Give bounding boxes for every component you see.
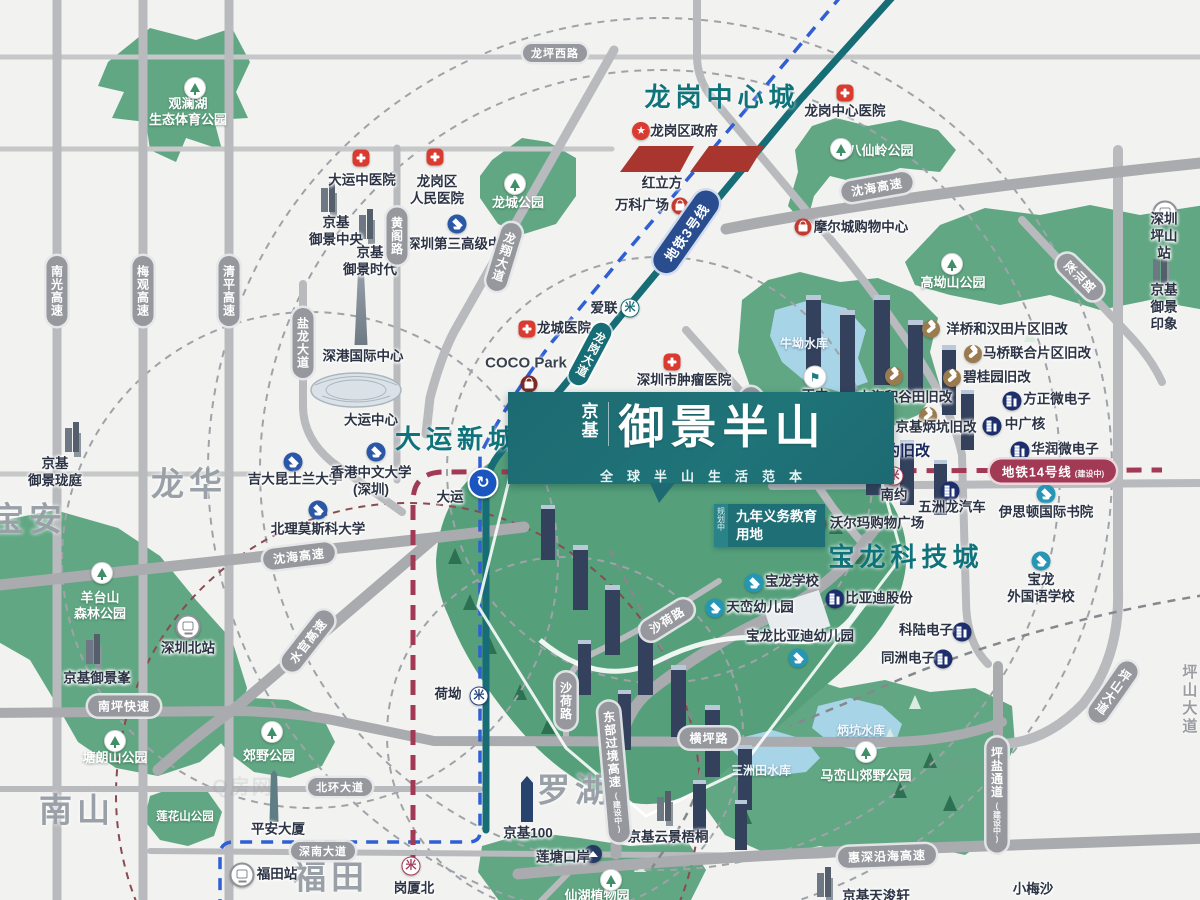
poi-dayun-tcm-hospital: 大运中医院 xyxy=(328,173,396,190)
park-yangtaishan: 羊台山 森林公园 xyxy=(74,590,126,623)
poi-walmart-plaza: 沃尔玛购物广场 xyxy=(830,516,925,533)
station-dayun: 大运 xyxy=(437,490,464,507)
buildings-icon-yujing-times xyxy=(356,208,382,240)
poi-jida-queensland-univ: 吉大昆士兰大学 xyxy=(248,472,343,489)
tower-icon-pingan xyxy=(270,770,279,822)
poi-sz-no3-high-school: 深圳第三高级中学 xyxy=(407,237,515,254)
project-logo: 京基 御景半山 全球半山生活范本 xyxy=(508,392,894,484)
poi-xiaomeisha: 小梅沙 xyxy=(1013,882,1054,899)
company-icon-tongzhou xyxy=(934,650,953,669)
poi-baolong-school: 宝龙学校 xyxy=(765,574,819,591)
school-icon-cuhk xyxy=(367,443,386,462)
road-shahe-vertical: 沙荷路 xyxy=(556,673,577,730)
road-longping-west: 龙坪西路 xyxy=(523,44,587,62)
tree-icon-xianhu xyxy=(600,869,622,891)
hospital-icon-dayun-tcm xyxy=(353,150,370,167)
road-yanlong-avenue: 盐龙大道 xyxy=(293,308,314,378)
poi-kingkey-yujing-longting: 京基 御景珑庭 xyxy=(28,456,82,490)
park-tanglangshan: 塘朗山公园 xyxy=(82,750,147,766)
station-ailian: 爱联 xyxy=(591,301,618,318)
company-icon-cgn xyxy=(983,417,1002,436)
school-icon-baolong-byd xyxy=(789,649,808,668)
park-lianhuashan: 莲花山公园 xyxy=(156,810,214,824)
education-parcel-text: 九年义务教育 用地 xyxy=(728,504,825,547)
poi-dayun-center: 大运中心 xyxy=(344,413,398,430)
poi-easton-intl-academy: 伊思顿国际书院 xyxy=(999,505,1094,522)
renewal-icon-jigutian xyxy=(885,367,903,385)
renewal-icon-biguiyuan xyxy=(943,369,961,387)
education-parcel-status: 规划中 xyxy=(714,504,728,547)
poi-kingkey-yujing-times: 京基 御景时代 xyxy=(343,245,397,279)
poi-yangqiao-hantian-renewal: 洋桥和汉田片区旧改 xyxy=(946,322,1068,339)
poi-kingkey-tianjunxuan: 京基天浚轩 xyxy=(842,889,910,900)
project-brand: 京基 xyxy=(576,402,609,446)
school-icon-tianluan xyxy=(706,599,725,618)
road-huishen-coastal-expwy: 惠深沿海高速 xyxy=(838,844,937,868)
renewal-icon-yangqiao xyxy=(922,320,940,338)
reservoir-sanzhoutian: 三洲田水库 xyxy=(731,764,791,779)
tree-icon-longcheng xyxy=(504,173,526,195)
education-parcel-label: 规划中 九年义务教育 用地 xyxy=(714,504,825,547)
poi-cuhk-shenzhen: 香港中文大学 (深圳) xyxy=(331,465,412,499)
school-icon-baolong xyxy=(745,574,764,593)
school-icon-bit-moscow xyxy=(309,501,328,520)
poi-shenzhen-pingshan-station: 深圳坪山站 xyxy=(1146,212,1182,263)
school-icon-easton xyxy=(1037,485,1056,504)
poi-baolong-foreign-school: 宝龙 外国语学校 xyxy=(1007,572,1075,606)
park-jiaoye: 郊野公园 xyxy=(243,748,295,764)
poi-liantang-port: 莲塘口岸 xyxy=(536,850,590,867)
district-dayun-new-town: 大运新城 xyxy=(395,423,519,456)
station-gangxiabei: 岗厦北 xyxy=(394,881,435,898)
park-guanlanhu: 观澜湖 生态体育公园 xyxy=(149,96,227,129)
poi-wuzhoulong-motors: 五洲龙汽车 xyxy=(918,500,986,517)
park-xianhu: 仙湖植物园 xyxy=(564,888,629,900)
shop-icon-coco-park xyxy=(521,376,538,393)
road-name-pingshan-avenue: 坪山大道 xyxy=(1179,664,1198,736)
renewal-icon-maqiao xyxy=(964,345,982,363)
district-longgang-central: 龙岗中心城 xyxy=(644,81,799,114)
hospital-icon-longgang-peoples xyxy=(427,149,444,166)
metro-icon-heao: 米 xyxy=(470,687,489,706)
poi-pingan-tower: 平安大厦 xyxy=(251,822,305,839)
road-nanguang-expwy: 南光高速 xyxy=(47,256,68,326)
road-shenshan: 深汕路 xyxy=(1052,249,1107,304)
hospital-icon-cancer xyxy=(664,354,681,371)
road-longxiang-avenue: 龙翔大道 xyxy=(484,220,525,293)
rail-icon-shenzhen-north xyxy=(176,615,201,640)
metro-line14-pill: 地铁14号线(建设中) xyxy=(990,460,1116,483)
road-qingping-expwy: 清平高速 xyxy=(219,256,240,326)
poi-shenzhen-north-station: 深圳北站 xyxy=(161,641,215,658)
poi-kingkey-yujing-central: 京基 御景中央 xyxy=(309,215,363,249)
road-huangge: 黄阁路 xyxy=(387,208,408,265)
watermark: Q房网 xyxy=(212,776,274,801)
buildings-icon-tianjunxuan xyxy=(814,866,840,898)
station-heao: 荷坳 xyxy=(435,687,462,704)
road-shahe-diagonal: 沙荷路 xyxy=(636,595,697,644)
buildings-icon-yujing-central xyxy=(318,181,344,213)
poi-tianluan-kindergarten: 天峦幼儿园 xyxy=(726,600,794,617)
buildings-icon-yujing-longting xyxy=(62,421,88,453)
poi-sz-cancer-hospital: 深圳市肿瘤医院 xyxy=(637,373,732,390)
buildings-icon-yunjing-wutong xyxy=(654,790,680,822)
poi-kingkey-yujing-feng: 京基御景峯 xyxy=(63,671,131,688)
poi-shengang-intl-center: 深港国际中心 xyxy=(323,349,404,366)
tree-icon-guanlanhu xyxy=(184,77,206,99)
metro-line3-pill: 地铁3号线 xyxy=(648,186,724,278)
reservoir-niuao: 牛坳水库 xyxy=(780,337,828,352)
station-nanyue: 南约 xyxy=(881,488,908,505)
buildings-icon-yujing-feng xyxy=(83,633,109,665)
golf-flag-icon: ⚑ xyxy=(804,366,827,389)
renewal-icon-bingkeng xyxy=(919,407,937,425)
poi-baolong-byd-kindergarten: 宝龙比亚迪幼儿园 xyxy=(746,629,854,646)
shop-icon-vanke xyxy=(672,198,689,215)
road-pingyan-channel-status: (建设中) xyxy=(993,802,1002,844)
hospital-icon-longcheng xyxy=(519,321,536,338)
poi-futian-station: 福田站 xyxy=(257,867,298,884)
tree-icon-yangtaishan xyxy=(91,562,113,584)
tower-icon-shengang-intl xyxy=(355,263,368,345)
buildings-icon-yujing-impression xyxy=(1150,252,1176,284)
poi-longcheng-hospital: 龙城医院 xyxy=(537,321,591,338)
hospital-icon-longgang-central xyxy=(837,85,854,102)
road-beihuan-avenue: 北环大道 xyxy=(308,778,372,796)
road-shennan-avenue: 深南大道 xyxy=(291,842,355,860)
company-icon-wuzhoulong xyxy=(941,482,960,501)
road-hengping: 横坪路 xyxy=(679,728,738,749)
park-baxianling: 八仙岭公园 xyxy=(848,143,913,159)
road-nanping-expwy: 南坪快速 xyxy=(88,696,160,717)
rail-icon-futian xyxy=(230,863,255,888)
metro-interchange-icon-dayun: ↻ xyxy=(468,468,499,499)
road-meiguan-expwy: 梅观高速 xyxy=(133,256,154,326)
tower-icon-kingkey100 xyxy=(521,776,533,822)
poi-crmicro: 华润微电子 xyxy=(1031,442,1099,459)
poi-kingkey-yunjing-wutong: 京基云景梧桐 xyxy=(628,830,709,847)
poi-bit-moscow-univ: 北理莫斯科大学 xyxy=(271,522,366,539)
road-eastern-transit-expwy: 东部过境高速(建设中) xyxy=(597,701,630,843)
poi-longgang-peoples-hospital: 龙岗区 人民医院 xyxy=(410,174,464,208)
road-shuiguan-expwy: 水官高速 xyxy=(278,606,339,676)
port-icon-liantang xyxy=(584,845,602,863)
road-pingshan-avenue-pill: 坪山大道 xyxy=(1084,657,1141,726)
road-shenhai-expwy-ne: 沈海高速 xyxy=(840,170,915,203)
poi-red-cube: 红立方 xyxy=(642,176,683,193)
logo-callout-tail xyxy=(650,483,675,503)
poi-cgn: 中广核 xyxy=(1005,417,1046,434)
company-icon-crmicro xyxy=(1011,442,1030,461)
tree-icon-tanglangshan xyxy=(104,730,126,752)
tree-icon-maluanshan xyxy=(855,741,877,763)
reservoir-bingkeng: 炳坑水库 xyxy=(837,724,885,739)
metro-icon-ailian: 米 xyxy=(621,299,640,318)
school-icon-baolong-foreign xyxy=(1032,552,1051,571)
poi-founder-micro: 方正微电子 xyxy=(1023,392,1091,409)
district-nanshan: 南山 xyxy=(39,789,115,830)
poi-kingkey-yujing-impression: 京基 御景印象 xyxy=(1146,283,1182,334)
park-longcheng: 龙城公园 xyxy=(492,195,544,211)
road-longgang-avenue: 龙岗大道 xyxy=(565,319,615,388)
company-icon-byd xyxy=(826,590,845,609)
poi-longgang-government: 龙岗区政府 xyxy=(650,124,718,141)
tree-icon-gaoaoshan xyxy=(941,253,963,275)
tree-icon-baxianling xyxy=(830,138,852,160)
metro-icon-gangxiabei: 米 xyxy=(402,857,421,876)
district-longhua: 龙华 xyxy=(151,463,227,504)
road-shenhai-expwy-w: 沈海高速 xyxy=(262,541,336,571)
rail-icon-pingshan xyxy=(1153,201,1178,226)
school-icon-jida-queensland xyxy=(284,453,303,472)
district-baoan: 宝安 xyxy=(0,498,67,539)
poi-longgang-central-hospital: 龙岗中心医院 xyxy=(805,104,886,121)
company-icon-founder xyxy=(1003,392,1022,411)
school-icon-no3-high xyxy=(448,215,467,234)
project-tagline: 全球半山生活范本 xyxy=(586,466,816,485)
shop-icon-moercheng xyxy=(795,219,812,236)
poi-moercheng-mall: 摩尔城购物中心 xyxy=(814,220,909,237)
project-title: 御景半山 xyxy=(619,391,827,457)
poi-byd: 比亚迪股份 xyxy=(845,591,913,608)
poi-coco-park: COCO Park xyxy=(485,355,567,374)
district-futian: 福田 xyxy=(293,856,369,897)
road-eastern-transit-expwy-status: (建设中) xyxy=(611,791,624,834)
poi-kingkey-100: 京基100 xyxy=(503,826,553,843)
district-baolong-tech-city: 宝龙科技城 xyxy=(828,541,983,574)
district-luohu: 罗湖 xyxy=(537,769,613,810)
government-star-icon: ★ xyxy=(632,122,650,140)
tree-icon-jiaoye xyxy=(261,721,283,743)
poi-kelu-electronics: 科陆电子 xyxy=(899,623,953,640)
park-gaoaoshan: 高坳山公园 xyxy=(920,275,985,291)
poi-biguiyuan-renewal: 碧桂园旧改 xyxy=(963,370,1031,387)
poi-vanke-plaza: 万科广场 xyxy=(615,198,669,215)
park-maluanshan: 马峦山郊野公园 xyxy=(820,768,911,784)
poi-tongzhou-electronics: 同洲电子 xyxy=(881,651,935,668)
road-pingyan-channel: 坪盐通道(建设中) xyxy=(987,738,1008,853)
map-canvas: 龙岗中心城大运新城宝龙科技城宝安龙华南山福田罗湖观澜湖 生态体育公园龙城公园八仙… xyxy=(0,0,1200,900)
company-icon-kelu xyxy=(953,623,972,642)
watermark: Q房网 xyxy=(927,756,989,781)
poi-kingkey-bingkeng-renewal: 京基炳坑旧改 xyxy=(896,420,977,437)
poi-maqiao-united-renewal: 马桥联合片区旧改 xyxy=(983,346,1091,363)
metro-line14-pill-status: (建设中) xyxy=(1075,470,1104,479)
